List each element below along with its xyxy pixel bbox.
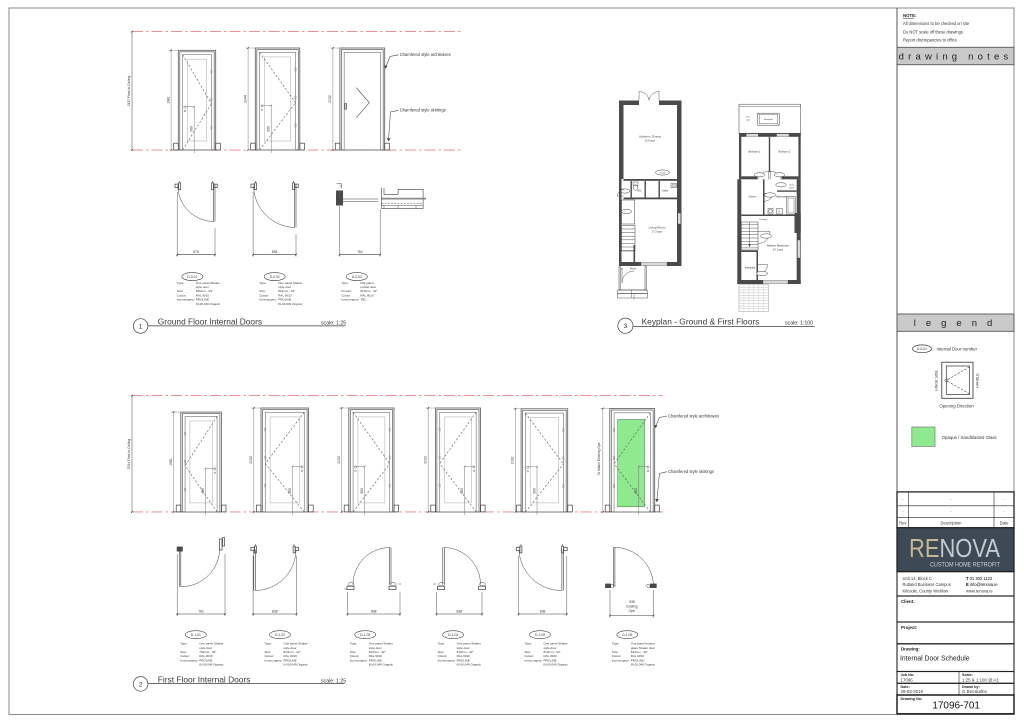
svg-text:D-0-01: D-0-01 xyxy=(917,347,927,351)
svg-text:D-1-02: D-1-02 xyxy=(275,633,285,637)
svg-text:31.6 sqm: 31.6 sqm xyxy=(645,140,655,143)
svg-text:Chamfered style architraves: Chamfered style architraves xyxy=(668,413,719,418)
svg-text:Porch: Porch xyxy=(630,267,637,270)
svg-text:Ironmongery:: Ironmongery: xyxy=(180,658,198,662)
svg-text:17096: 17096 xyxy=(901,677,914,682)
svg-text:900: 900 xyxy=(201,488,205,494)
svg-text:IN.00.049 Organic: IN.00.049 Organic xyxy=(457,663,482,667)
svg-text:Bedroom 1: Bedroom 1 xyxy=(749,151,761,154)
svg-text:Opening Direction: Opening Direction xyxy=(939,404,974,409)
svg-text:NOTE:: NOTE: xyxy=(903,13,917,18)
svg-text:762: 762 xyxy=(198,609,204,613)
svg-text:Internal Door Schedule: Internal Door Schedule xyxy=(900,654,970,663)
svg-text:Rev: Rev xyxy=(899,520,907,525)
svg-text:IN.00.049 Organic: IN.00.049 Organic xyxy=(544,663,569,667)
svg-text:Type:: Type: xyxy=(525,642,533,646)
svg-text:To Match Existing Ope: To Match Existing Ope xyxy=(597,442,601,475)
svg-text:Keyplan - Ground & First Floor: Keyplan - Ground & First Floors xyxy=(642,317,760,327)
svg-text:2032: 2032 xyxy=(337,456,341,464)
svg-text:D-1-03: D-1-03 xyxy=(360,633,370,637)
svg-text:RENOVA: RENOVA xyxy=(909,535,1000,563)
svg-text:838: 838 xyxy=(540,609,546,613)
svg-text:IN.00.049 Organic: IN.00.049 Organic xyxy=(369,663,394,667)
svg-text:CUSTOM HOME RETROFIT: CUSTOM HOME RETROFIT xyxy=(930,562,1000,569)
svg-text:Type:: Type: xyxy=(341,281,349,285)
svg-text:2032: 2032 xyxy=(423,456,427,464)
svg-text:Unit 14, Block C: Unit 14, Block C xyxy=(903,576,932,581)
svg-text:17096-701: 17096-701 xyxy=(932,701,980,712)
svg-text:D-1-06: D-1-06 xyxy=(622,633,632,637)
svg-text:IN.00.049 Organic: IN.00.049 Organic xyxy=(199,663,224,667)
svg-text:WC: WC xyxy=(638,190,642,193)
svg-text:All dimensions to be checked o: All dimensions to be checked on site xyxy=(903,21,970,26)
svg-text:HANDLE: HANDLE xyxy=(976,373,980,388)
svg-text:675: 675 xyxy=(193,250,199,254)
svg-text:Linen: Linen xyxy=(789,185,795,187)
svg-text:Type:: Type: xyxy=(612,642,620,646)
svg-text:Type:: Type: xyxy=(177,281,185,285)
svg-text:Type:: Type: xyxy=(180,642,188,646)
svg-text:TBC: TBC xyxy=(360,298,367,302)
svg-text:Wardrobe: Wardrobe xyxy=(745,267,756,270)
svg-text:Project:: Project: xyxy=(901,625,918,630)
svg-text:14.1 sqm: 14.1 sqm xyxy=(773,249,783,252)
svg-text:Kilcoole, County Wicklow: Kilcoole, County Wicklow xyxy=(903,589,949,594)
svg-text:D-1-01: D-1-01 xyxy=(191,633,201,637)
svg-text:D-0-02: D-0-02 xyxy=(270,275,280,279)
svg-text:T 01 302 1122: T 01 302 1122 xyxy=(966,576,993,581)
svg-text:Ironmongery:: Ironmongery: xyxy=(341,298,359,302)
svg-text:900: 900 xyxy=(190,126,194,132)
svg-text:Chamfered style skirtings: Chamfered style skirtings xyxy=(668,469,714,474)
svg-text:Client:: Client: xyxy=(901,599,915,604)
svg-text:Ironmongery:: Ironmongery: xyxy=(525,658,543,662)
svg-text:3: 3 xyxy=(624,323,628,330)
svg-text:scale: 1:100: scale: 1:100 xyxy=(785,321,813,327)
svg-text:900: 900 xyxy=(360,488,364,494)
svg-text:1981: 1981 xyxy=(166,96,170,104)
svg-text:2244 Floor to Ceiling: 2244 Floor to Ceiling xyxy=(127,439,131,470)
svg-text:Description: Description xyxy=(941,520,963,525)
svg-text:1:25 & 1:100 @ A1: 1:25 & 1:100 @ A1 xyxy=(962,677,999,682)
svg-text:First Floor Internal Doors: First Floor Internal Doors xyxy=(158,674,251,684)
svg-text:HINGE SIDE: HINGE SIDE xyxy=(934,370,938,391)
svg-text:Bedroom 2: Bedroom 2 xyxy=(779,151,791,154)
svg-text:838: 838 xyxy=(456,609,462,613)
svg-text:Ironmongery:: Ironmongery: xyxy=(265,658,283,662)
svg-text:Chamfered style skirtings: Chamfered style skirtings xyxy=(400,108,446,113)
svg-text:Store: Store xyxy=(789,187,795,190)
svg-text:760: 760 xyxy=(357,250,363,254)
svg-text:838: 838 xyxy=(371,609,377,613)
svg-text:Living Room: Living Room xyxy=(649,226,666,230)
svg-text:Report discrepancies to office: Report discrepancies to office xyxy=(903,38,958,43)
svg-text:838: 838 xyxy=(272,609,278,613)
svg-text:Chamfered style architraves: Chamfered style architraves xyxy=(400,52,451,57)
svg-text:900: 900 xyxy=(460,488,464,494)
svg-text:flat: flat xyxy=(747,116,750,119)
svg-text:Opaque / Sandblasted Glass: Opaque / Sandblasted Glass xyxy=(942,435,997,440)
svg-text:Utility: Utility xyxy=(662,190,669,193)
svg-text:Kitchen / Dining: Kitchen / Dining xyxy=(639,135,660,139)
svg-text:Ironmongery:: Ironmongery: xyxy=(438,658,456,662)
svg-text:legend: legend xyxy=(914,318,1003,329)
svg-text:Ironmongery:: Ironmongery: xyxy=(612,658,630,662)
svg-text:Closet: Closet xyxy=(748,195,756,199)
svg-text:Bathroom: Bathroom xyxy=(776,195,787,199)
svg-text:28-03-2019: 28-03-2019 xyxy=(901,689,924,694)
svg-text:Master Bedroom: Master Bedroom xyxy=(767,244,790,248)
svg-text:Drawing No:: Drawing No: xyxy=(901,697,923,701)
svg-text:900: 900 xyxy=(288,488,292,494)
svg-text:D-1-05: D-1-05 xyxy=(535,633,545,637)
svg-text:Ope.: Ope. xyxy=(629,609,636,613)
svg-text:Ironmongery:: Ironmongery: xyxy=(259,298,277,302)
svg-text:900: 900 xyxy=(532,488,536,494)
svg-text:1: 1 xyxy=(139,323,143,330)
svg-text:838: 838 xyxy=(629,600,635,604)
svg-text:Type:: Type: xyxy=(438,642,446,646)
svg-text:Ground Floor Internal Doors: Ground Floor Internal Doors xyxy=(158,317,262,327)
svg-text:roof: roof xyxy=(746,119,750,122)
svg-text:Ironmongery:: Ironmongery: xyxy=(177,298,195,302)
svg-text:IN.00.049 Organic: IN.00.049 Organic xyxy=(631,663,656,667)
svg-text:www.renova.ie: www.renova.ie xyxy=(966,589,993,594)
svg-text:900: 900 xyxy=(267,126,271,132)
svg-text:Ironmongery:: Ironmongery: xyxy=(350,658,368,662)
svg-text:D-0-02: D-0-02 xyxy=(660,173,666,175)
svg-text:IN.00.049 Organic: IN.00.049 Organic xyxy=(278,302,303,306)
svg-text:G.Becskalne: G.Becskalne xyxy=(962,689,987,694)
svg-text:Landing: Landing xyxy=(759,219,768,221)
svg-text:D-0-01: D-0-01 xyxy=(187,275,197,279)
svg-text:Do NOT scale off these drawing: Do NOT scale off these drawings xyxy=(903,29,963,34)
svg-text:2032: 2032 xyxy=(328,95,332,103)
svg-text:2457 Floor to Ceiling: 2457 Floor to Ceiling xyxy=(127,76,131,107)
svg-text:Internal Door number: Internal Door number xyxy=(937,346,978,351)
svg-text:Type:: Type: xyxy=(350,642,358,646)
svg-text:2: 2 xyxy=(139,681,143,688)
svg-text:900: 900 xyxy=(634,488,638,494)
svg-text:drawing notes: drawing notes xyxy=(899,51,1013,62)
svg-text:2044: 2044 xyxy=(243,95,247,103)
svg-text:IN.00.049 Organic: IN.00.049 Organic xyxy=(196,302,221,306)
svg-text:IN.00.049 Organic: IN.00.049 Organic xyxy=(284,663,309,667)
svg-text:Type:: Type: xyxy=(259,281,267,285)
svg-text:2032: 2032 xyxy=(249,456,253,464)
svg-text:D-0-03: D-0-03 xyxy=(352,275,362,279)
svg-text:838: 838 xyxy=(272,250,278,254)
svg-text:17.2 sqm: 17.2 sqm xyxy=(652,231,662,234)
svg-text:Rooflight: Rooflight xyxy=(764,118,773,121)
svg-text:Existing: Existing xyxy=(626,605,637,609)
svg-text:2032: 2032 xyxy=(511,456,515,464)
svg-text:Drawing:: Drawing: xyxy=(901,647,920,652)
svg-text:Type:: Type: xyxy=(265,642,273,646)
svg-text:Rutland Business Campus: Rutland Business Campus xyxy=(903,582,951,587)
svg-text:D-1-04: D-1-04 xyxy=(448,633,458,637)
svg-text:E info@renova.ie: E info@renova.ie xyxy=(966,582,998,587)
svg-text:Date: Date xyxy=(1000,520,1010,525)
svg-text:1981: 1981 xyxy=(169,458,173,466)
